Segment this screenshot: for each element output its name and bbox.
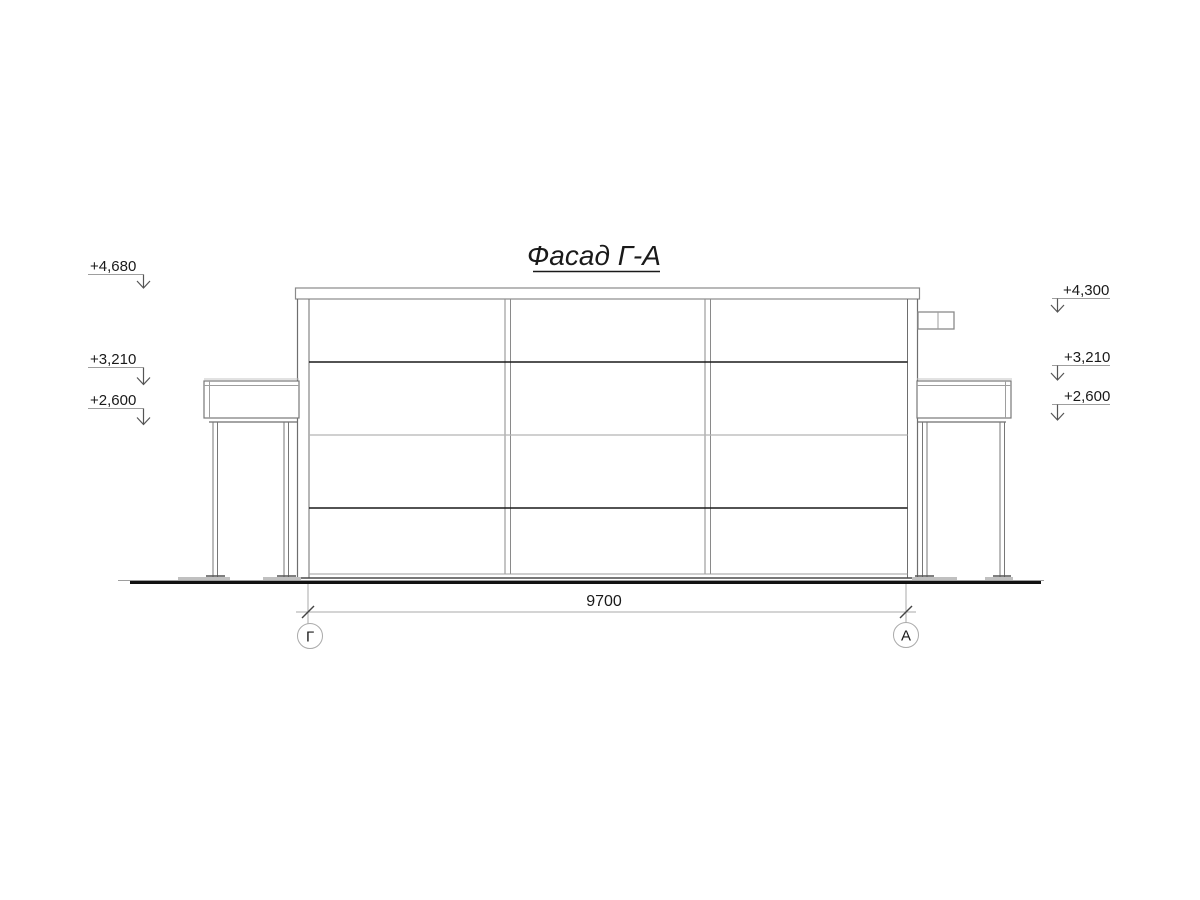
ground-line [118,581,1044,583]
left-canopy-post-1 [213,422,218,577]
elevation-value: +2,600 [90,392,136,409]
axis-label-right: А [901,628,911,645]
elevation-value: +4,300 [1063,282,1109,299]
left-canopy-footing-pad-2 [263,577,301,581]
axis-bubble-left: Г [298,624,323,649]
left-canopy-footing-pad-1 [178,577,230,581]
elevation-mark-left-3210: +3,210 [88,351,150,385]
parapet-band [296,288,920,299]
elevation-value: +3,210 [1064,349,1110,366]
page-title: Фасад Г-А [527,240,661,271]
roof-outlet-pipe [918,312,954,329]
mullion-2 [705,299,711,574]
dimension-group: 9700 Г А [296,584,919,649]
right-canopy [912,379,1013,581]
elevation-arrow-icon [137,275,150,289]
left-canopy [178,379,301,581]
right-canopy-footing-pad-2 [985,577,1013,581]
elevation-value: +3,210 [90,351,136,368]
elevation-arrow-icon [137,368,150,385]
left-canopy-fascia [204,381,299,418]
elevation-marks-right: +4,300 +3,210 +2,600 [1051,282,1110,420]
elevation-value: +4,680 [90,258,136,275]
elevation-marks-left: +4,680 +3,210 +2,600 [88,258,150,425]
axis-bubble-right: А [894,623,919,648]
elevation-arrow-icon [1051,299,1064,313]
elevation-mark-right-4300: +4,300 [1051,282,1110,312]
elevation-mark-right-3210: +3,210 [1051,349,1110,380]
drawing-sheet: Фасад Г-А [0,0,1200,900]
elevation-arrow-icon [137,409,150,425]
right-canopy-post-1 [923,422,928,577]
right-canopy-post-2 [1000,422,1005,577]
axis-label-left: Г [306,629,314,646]
drawing-title: Фасад Г-А [527,240,661,272]
facade-drawing: Фасад Г-А [0,0,1200,900]
left-canopy-post-2 [284,422,289,577]
elevation-mark-right-2600: +2,600 [1051,388,1110,420]
right-canopy-fascia [917,381,1011,418]
right-canopy-footing-pad-1 [912,577,957,581]
dimension-value: 9700 [586,593,622,610]
elevation-mark-left-4680: +4,680 [88,258,150,288]
mullion-1 [505,299,511,574]
elevation-arrow-icon [1051,366,1064,381]
elevation-value: +2,600 [1064,388,1110,405]
facade-body [296,288,920,578]
elevation-mark-left-2600: +2,600 [88,392,150,425]
elevation-arrow-icon [1051,405,1064,421]
